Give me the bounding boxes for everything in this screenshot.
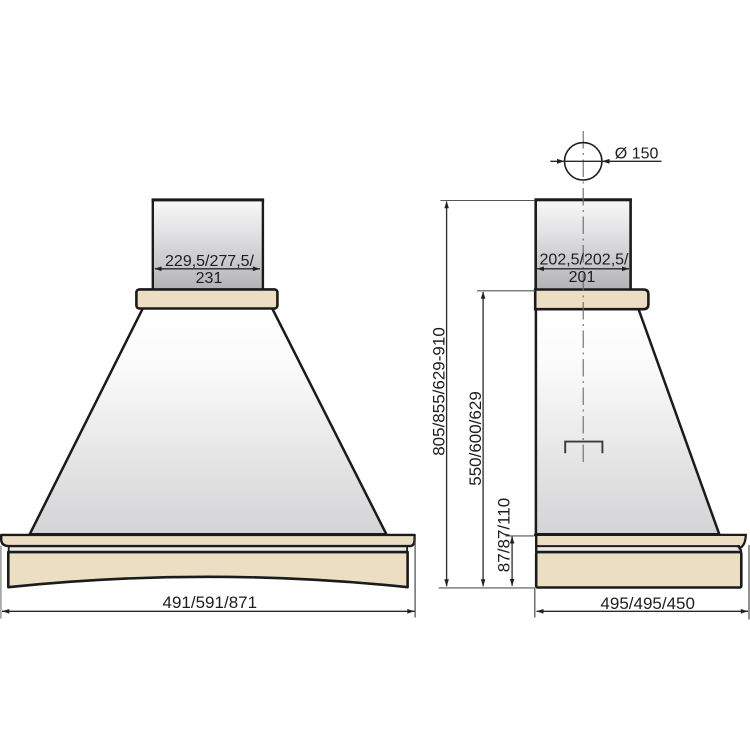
svg-text:491/591/871: 491/591/871 [163,593,258,612]
svg-text:87/87/110: 87/87/110 [495,498,514,572]
svg-text:Ø 150: Ø 150 [615,145,659,162]
svg-text:231: 231 [196,270,223,287]
svg-text:805/855/629-910: 805/855/629-910 [430,327,449,456]
svg-text:495/495/450: 495/495/450 [600,594,695,613]
svg-text:201: 201 [569,269,596,286]
svg-text:229,5/277,5/: 229,5/277,5/ [165,253,255,270]
svg-text:550/600/629: 550/600/629 [466,391,485,486]
svg-text:202,5/202,5/: 202,5/202,5/ [540,252,630,269]
